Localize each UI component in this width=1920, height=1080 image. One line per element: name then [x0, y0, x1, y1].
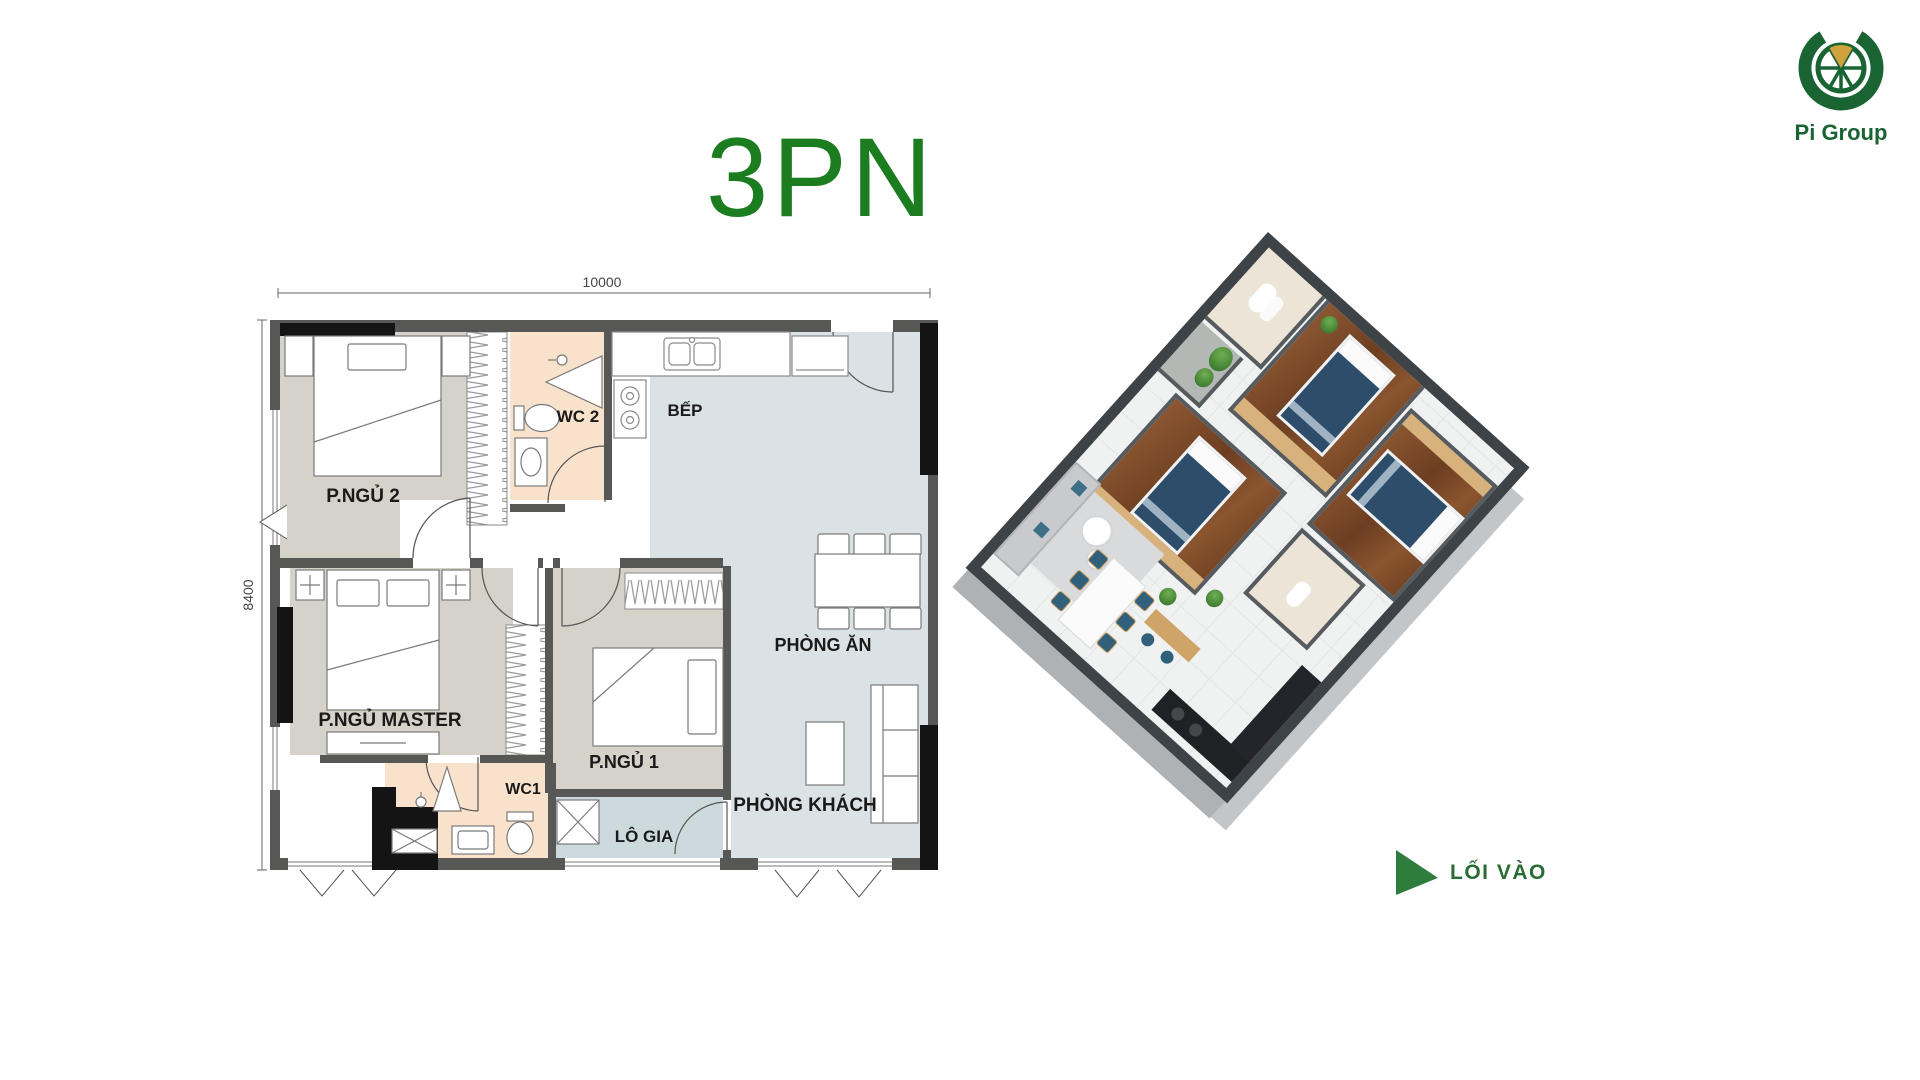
label-living: PHÒNG KHÁCH: [733, 794, 877, 816]
dining-furniture: [815, 534, 921, 629]
page-title: 3PN: [706, 122, 936, 234]
label-dining: PHÒNG ĂN: [774, 634, 871, 655]
label-loggia: LÔ GIA: [615, 827, 674, 846]
label-kitchen: BẾP: [668, 401, 703, 420]
entrance-marker: LỐI VÀO: [1396, 850, 1547, 895]
label-wc1: WC1: [505, 781, 541, 798]
label-bedroom1: P.NGỦ 1: [589, 751, 659, 772]
floorplan-3d: [966, 232, 1530, 803]
3d-plant: [1317, 312, 1342, 337]
loggia-fixtures: [557, 800, 599, 844]
dim-width-label: 10000: [583, 274, 622, 290]
label-wc2: WC 2: [557, 407, 600, 426]
bedroom1-furniture: [593, 648, 723, 746]
slide-canvas: 3PN Pi Group 10000: [0, 0, 1920, 1080]
pigroup-logo: Pi Group: [1786, 12, 1896, 148]
entrance-label: LỐI VÀO: [1450, 861, 1547, 885]
dim-height-label: 8400: [240, 579, 256, 610]
logo-text: Pi Group: [1795, 120, 1888, 145]
label-bedroom2: P.NGỦ 2: [326, 485, 400, 507]
3d-bed: [1346, 449, 1465, 565]
floorplan-2d: 10000 8400: [230, 270, 960, 920]
3d-bed: [1276, 334, 1396, 457]
entrance-arrow-icon: [1396, 850, 1438, 895]
label-master: P.NGỦ MASTER: [318, 709, 462, 731]
